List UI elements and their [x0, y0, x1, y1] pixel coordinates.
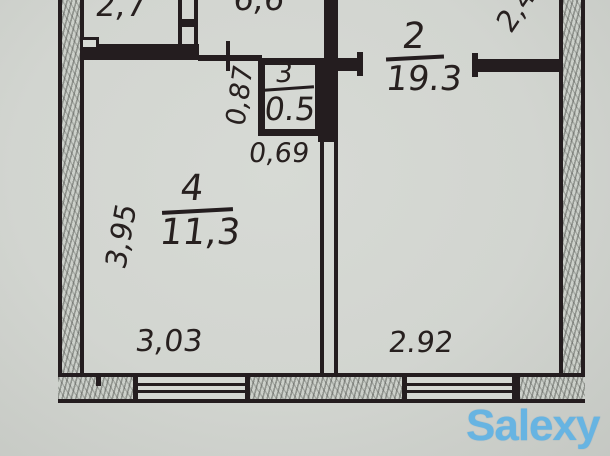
dim-top-right: 2,4: [487, 0, 545, 43]
room2-area: 19.3: [382, 59, 467, 99]
window-pane-line: [407, 383, 512, 386]
window-pane-line: [138, 390, 245, 393]
wall-room2-top: [473, 59, 561, 72]
room4-area: 11,3: [153, 212, 246, 253]
room2-number: 2: [395, 16, 432, 57]
dim-top-left: 2,7: [88, 0, 155, 24]
window-pane-line: [138, 383, 245, 386]
outer-wall-left: [58, 0, 84, 403]
salexy-watermark: Salexy: [466, 404, 599, 448]
wall-center-upper: [318, 58, 338, 142]
dim-tick-bottom: [96, 374, 101, 386]
room3-number: 3: [268, 58, 300, 89]
window-pane-line: [407, 390, 512, 393]
wall-center-right-line: [334, 142, 338, 375]
dim-bottom-right: 2.92: [382, 325, 460, 359]
window-room2: [402, 373, 520, 403]
dim-bottom-left: 3,03: [124, 324, 214, 359]
dim-top-middle-partial: 6,6: [226, 0, 293, 18]
wall-center-left-line: [320, 142, 324, 375]
outer-wall-right: [559, 0, 585, 403]
dim-niche-width: 0,69: [246, 138, 312, 169]
pilaster-box: [80, 37, 99, 50]
door-jamb-left: [357, 52, 363, 76]
window-room4: [133, 373, 250, 403]
wall-center-top: [324, 0, 338, 62]
door-jamb-right: [472, 53, 478, 77]
room3-area: 0.5: [260, 90, 321, 128]
room4-number: 4: [171, 168, 212, 209]
wall-top-partition: [178, 0, 198, 47]
floor-plan-photo: 2 19.3 3 0.5 4 11,3 2,7 6,6 2,4 0,87 0,6…: [0, 0, 610, 456]
wall-rung: [178, 19, 198, 27]
dim-left-side: 3,95: [97, 190, 144, 282]
